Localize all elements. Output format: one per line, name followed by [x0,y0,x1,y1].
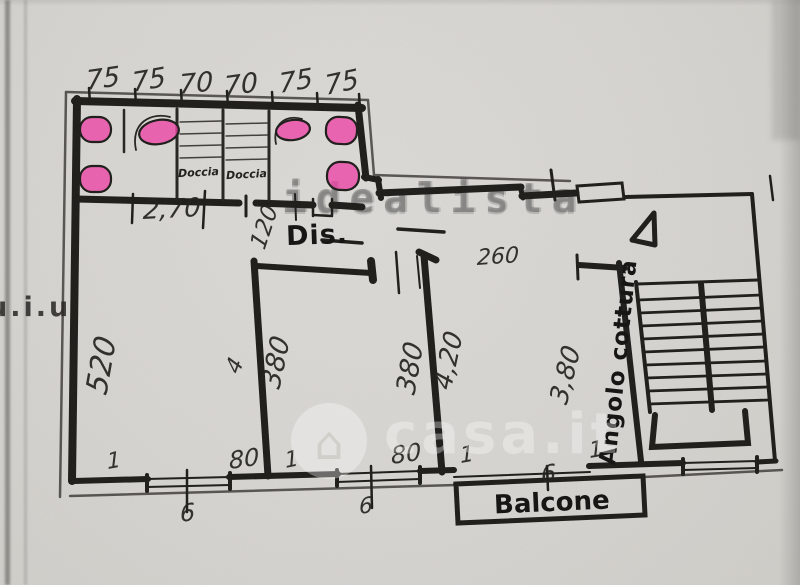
room-label-disimpegno: Dis. [285,219,348,252]
room-label-doccia-left: Doccia [178,165,220,180]
scanned-floorplan-page: idealista [0,0,800,585]
floorplan-drawing [0,0,800,585]
room-label-balcone: Balcone [493,485,610,520]
stamp-text-uiu: u.i.u [0,292,71,323]
paper-grain-texture [0,0,800,585]
room-label-doccia-right: Doccia [226,167,268,182]
